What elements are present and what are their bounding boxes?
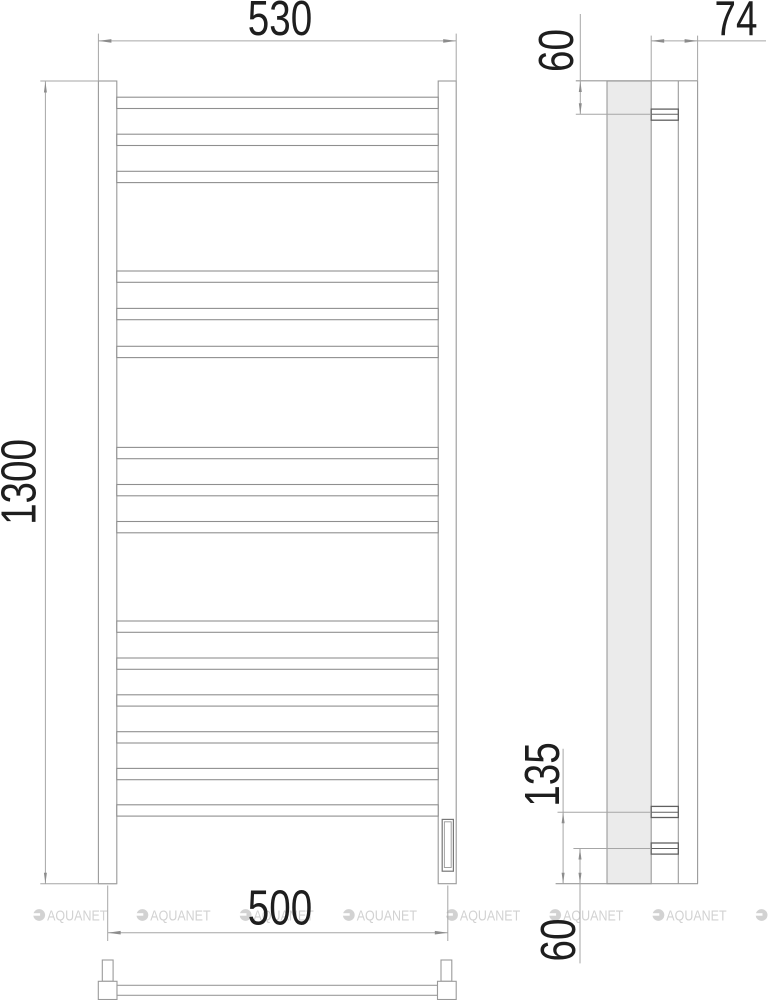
svg-text:AQUANET: AQUANET <box>357 908 417 924</box>
svg-text:530: 530 <box>248 0 312 46</box>
svg-text:1300: 1300 <box>0 439 47 525</box>
svg-text:60: 60 <box>530 29 585 72</box>
svg-text:500: 500 <box>248 881 312 936</box>
svg-text:AQUANET: AQUANET <box>460 908 520 924</box>
svg-text:74: 74 <box>715 0 758 46</box>
svg-text:AQUANET: AQUANET <box>666 908 726 924</box>
svg-text:AQUANET: AQUANET <box>47 908 107 924</box>
svg-text:60: 60 <box>532 919 587 962</box>
svg-text:135: 135 <box>516 742 571 806</box>
svg-text:AQUANET: AQUANET <box>150 908 210 924</box>
